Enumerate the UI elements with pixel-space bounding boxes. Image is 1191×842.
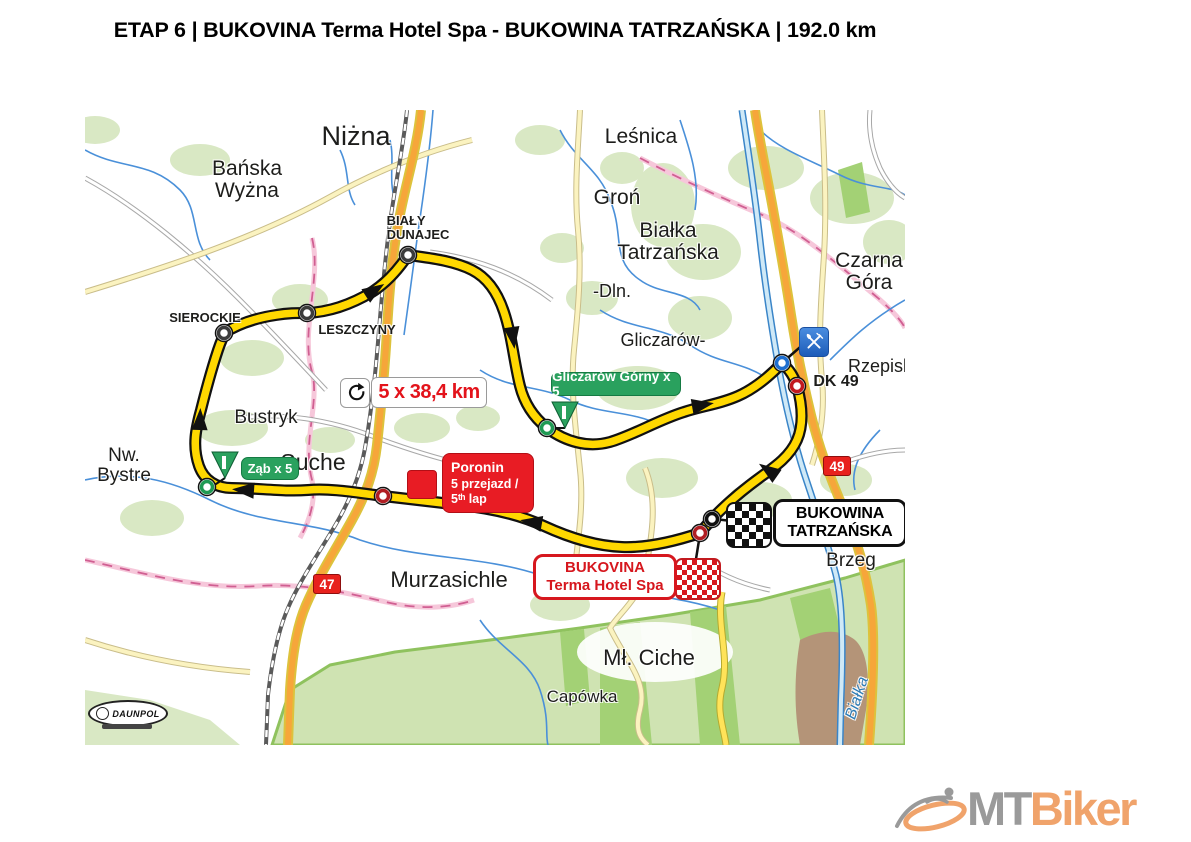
poronin-line-2: 5 przejazd / xyxy=(451,477,527,493)
place-leszczyny: LESZCZYNY xyxy=(318,323,395,337)
poronin-red-square-marker xyxy=(407,470,437,499)
mtbiker-cyclist-icon xyxy=(893,782,971,836)
fork-knife-icon xyxy=(802,330,826,354)
map-artwork xyxy=(85,110,905,745)
mtbiker-mt-text: MT xyxy=(967,781,1030,836)
place-murzasichle: Murzasichle xyxy=(390,568,507,591)
start-label-line-1: BUKOVINA xyxy=(536,559,674,577)
road-shield-47: 47 xyxy=(313,574,341,594)
place-dln: -Dln. xyxy=(593,282,631,301)
daunpol-emblem xyxy=(96,707,109,720)
climb-label-gliczarow-gorny: Gliczarów Górny x 5 xyxy=(551,372,681,396)
finish-checkered-flag xyxy=(726,502,772,548)
lap-distance-text: 5 x 38,4 km xyxy=(378,381,479,404)
mtbiker-biker-text: Biker xyxy=(1030,781,1135,836)
lap-loop-icon xyxy=(340,378,370,408)
place-bialka-tatrzanska: BiałkaTatrzańska xyxy=(617,220,719,264)
place-czarna-gora: CzarnaGóra xyxy=(835,250,903,294)
poronin-line-3: 5ᵗʰ lap xyxy=(451,492,527,508)
place-bustryk: Bustryk xyxy=(234,408,297,428)
finish-label-line-2: TATRZAŃSKA xyxy=(776,523,904,541)
place-brzeg: Brzeg xyxy=(826,551,876,571)
place-lesnica: Leśnica xyxy=(605,126,677,148)
loop-arrow-glyph xyxy=(344,382,366,404)
stage-map-page: ETAP 6 | BUKOVINA Terma Hotel Spa - BUKO… xyxy=(0,0,1191,842)
place-capowka: Capówka xyxy=(547,688,618,706)
place-gron: Groń xyxy=(594,187,641,209)
place-dk-49: DK 49 xyxy=(813,374,858,391)
place-nizna: Niżna xyxy=(321,122,390,150)
mtbiker-logo: MT Biker xyxy=(893,781,1135,836)
place-nw-bystre: Nw.Bystre xyxy=(97,446,151,486)
place-gliczarow: Gliczarów- xyxy=(620,331,705,350)
place-banska-wyzna: BańskaWyżna xyxy=(212,158,282,202)
start-label: BUKOVINA Terma Hotel Spa xyxy=(533,554,677,600)
daunpol-logo: DAUNPOL xyxy=(88,700,168,727)
lap-distance-badge: 5 x 38,4 km xyxy=(371,377,487,408)
poronin-lap-label: Poronin 5 przejazd / 5ᵗʰ lap xyxy=(442,453,534,513)
start-label-line-2: Terma Hotel Spa xyxy=(536,577,674,595)
stage-title: ETAP 6 | BUKOVINA Terma Hotel Spa - BUKO… xyxy=(85,18,905,43)
place-bialy-dunajec: BIAŁYDUNAJEC xyxy=(387,214,450,241)
place-ml-ciche: Mł. Ciche xyxy=(603,646,695,669)
poronin-title: Poronin xyxy=(451,459,527,477)
daunpol-subtext-bar xyxy=(102,724,152,729)
start-checkered-flag xyxy=(675,558,721,600)
place-sierockie: SIEROCKIE xyxy=(169,311,241,325)
finish-label: BUKOWINA TATRZAŃSKA xyxy=(773,499,905,547)
climb-label-zab: Ząb x 5 xyxy=(241,457,299,480)
daunpol-wordmark: DAUNPOL xyxy=(112,709,159,719)
route-map: NiżnaBańskaWyżnaBIAŁYDUNAJECLeśnicaGrońB… xyxy=(85,110,905,745)
finish-label-line-1: BUKOWINA xyxy=(776,505,904,523)
road-shield-49: 49 xyxy=(823,456,851,476)
feed-zone-icon xyxy=(799,327,829,357)
